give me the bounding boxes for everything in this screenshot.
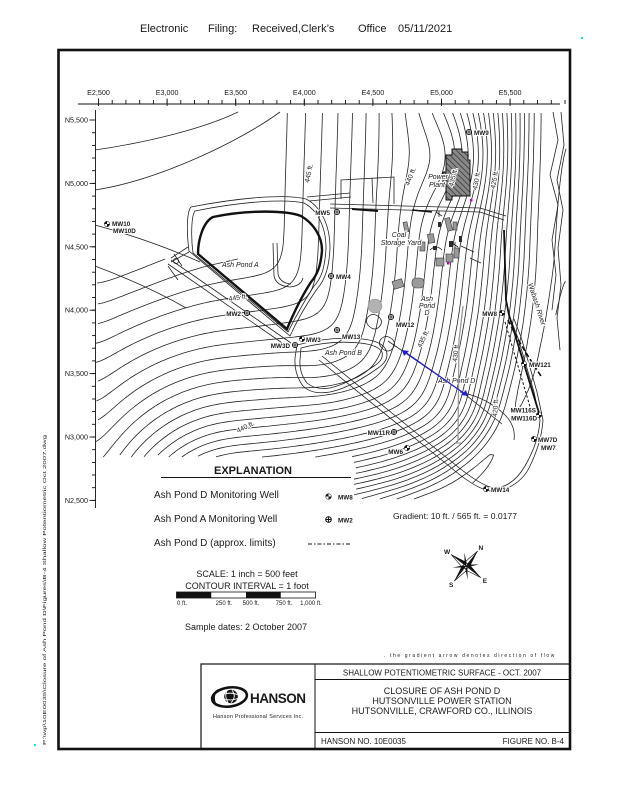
svg-text:E: E <box>483 578 488 585</box>
svg-text:E3,000: E3,000 <box>156 88 179 97</box>
svg-text:N4,000: N4,000 <box>65 306 88 315</box>
svg-text:FIGURE NO. B-4: FIGURE NO. B-4 <box>503 737 565 746</box>
svg-text:N3,000: N3,000 <box>65 433 88 442</box>
svg-text:. the gradient arrow denote: . the gradient arrow denotes direction o… <box>384 653 556 659</box>
svg-text:Pond: Pond <box>419 303 436 310</box>
svg-text:420 ft.: 420 ft. <box>492 398 500 417</box>
svg-text:HANSON NO. 10E0035: HANSON NO. 10E0035 <box>321 737 406 746</box>
svg-text:MW121: MW121 <box>529 362 551 369</box>
svg-text:0 ft.: 0 ft. <box>177 601 187 607</box>
svg-text:MW10D: MW10D <box>113 228 136 235</box>
svg-text:CLOSURE OF ASH POND D: CLOSURE OF ASH POND D <box>384 686 501 696</box>
svg-text:MW2: MW2 <box>338 518 353 525</box>
svg-text:N2,500: N2,500 <box>65 496 88 505</box>
svg-text:Ash Pond B: Ash Pond B <box>324 350 362 357</box>
svg-text:500 ft.: 500 ft. <box>243 601 260 607</box>
svg-text:HANSON: HANSON <box>250 691 306 706</box>
svg-text:E3,500: E3,500 <box>224 88 247 97</box>
svg-text:250 ft.: 250 ft. <box>216 601 233 607</box>
svg-text:D: D <box>424 310 429 317</box>
svg-text:SHALLOW POTENTIOMETRIC SURFACE: SHALLOW POTENTIOMETRIC SURFACE - OCT. 20… <box>343 669 542 678</box>
svg-text:Power: Power <box>428 174 449 181</box>
svg-text:Sample dates: 2 October 2007: Sample dates: 2 October 2007 <box>185 622 307 632</box>
svg-text:MW4: MW4 <box>336 274 351 281</box>
svg-text:Ash Pond D (approx. limits): Ash Pond D (approx. limits) <box>154 538 276 549</box>
svg-text:SCALE: 1 inch = 500 feet: SCALE: 1 inch = 500 feet <box>196 569 298 579</box>
svg-text:MW11R: MW11R <box>368 430 391 437</box>
svg-text:E5,500: E5,500 <box>499 88 522 97</box>
svg-text:N3,500: N3,500 <box>65 369 88 378</box>
svg-text:MW116S: MW116S <box>510 408 536 415</box>
svg-text:Ash: Ash <box>420 296 433 303</box>
svg-text:Storage Yard: Storage Yard <box>381 240 423 247</box>
svg-text:E4,500: E4,500 <box>362 88 385 97</box>
svg-text:MW116D: MW116D <box>511 416 537 423</box>
svg-text:MW3: MW3 <box>306 337 321 344</box>
svg-text:MW6: MW6 <box>388 449 403 456</box>
svg-text:Hanson Professional Services I: Hanson Professional Services Inc. <box>213 714 303 720</box>
svg-text:Ash Pond A Monitoring Well: Ash Pond A Monitoring Well <box>154 514 277 525</box>
svg-text:MW7D: MW7D <box>538 437 558 444</box>
svg-text:E2,500: E2,500 <box>87 88 110 97</box>
svg-text:HUTSONVILLE, CRAWFORD CO., ILL: HUTSONVILLE, CRAWFORD CO., ILLINOIS <box>352 706 533 716</box>
svg-text:750 ft.: 750 ft. <box>276 601 293 607</box>
svg-text:CONTOUR INTERVAL = 1 foot: CONTOUR INTERVAL = 1 foot <box>185 581 309 591</box>
svg-text:MW12: MW12 <box>396 322 415 329</box>
svg-text:ElectronicFiling:Received,Cler: ElectronicFiling:Received,Clerk’sOffice0… <box>140 23 452 35</box>
svg-text:MW13: MW13 <box>342 334 361 341</box>
svg-text:EXPLANATION: EXPLANATION <box>214 465 292 477</box>
svg-text:MW2: MW2 <box>226 311 241 318</box>
svg-text:MW10: MW10 <box>112 221 131 228</box>
svg-text:E4,000: E4,000 <box>293 88 316 97</box>
svg-text:Coal: Coal <box>392 232 407 239</box>
svg-text:E5,000: E5,000 <box>430 88 453 97</box>
svg-text:S: S <box>449 582 454 589</box>
svg-text:MW5: MW5 <box>315 210 330 217</box>
svg-text:MW8: MW8 <box>338 495 353 502</box>
svg-text:W: W <box>444 549 451 556</box>
svg-text:N5,500: N5,500 <box>65 116 88 125</box>
svg-text:1,000 ft.: 1,000 ft. <box>300 601 322 607</box>
svg-text:N4,500: N4,500 <box>65 242 88 251</box>
svg-text:HUTSONVILLE POWER STATION: HUTSONVILLE POWER STATION <box>372 696 511 706</box>
svg-text:MW7: MW7 <box>541 445 556 452</box>
svg-text:Ash Pond D Monitoring Well: Ash Pond D Monitoring Well <box>154 490 279 501</box>
svg-text:MW14: MW14 <box>491 487 510 494</box>
svg-text:Gradient: 10 ft. / 565 ft. =: Gradient: 10 ft. / 565 ft. = 0.0177 <box>393 511 517 521</box>
svg-text:Plant: Plant <box>429 182 446 189</box>
svg-text:P:\wp\10E0035\Closure of Ash P: P:\wp\10E0035\Closure of Ash Pond D\Figu… <box>42 434 48 745</box>
svg-text:MW9: MW9 <box>474 130 489 137</box>
svg-text:MW3D: MW3D <box>271 343 291 350</box>
svg-text:Ash Pond A: Ash Pond A <box>221 262 259 269</box>
svg-text:N: N <box>478 545 483 552</box>
svg-text:N5,000: N5,000 <box>65 179 88 188</box>
svg-text:MW8: MW8 <box>482 311 497 318</box>
